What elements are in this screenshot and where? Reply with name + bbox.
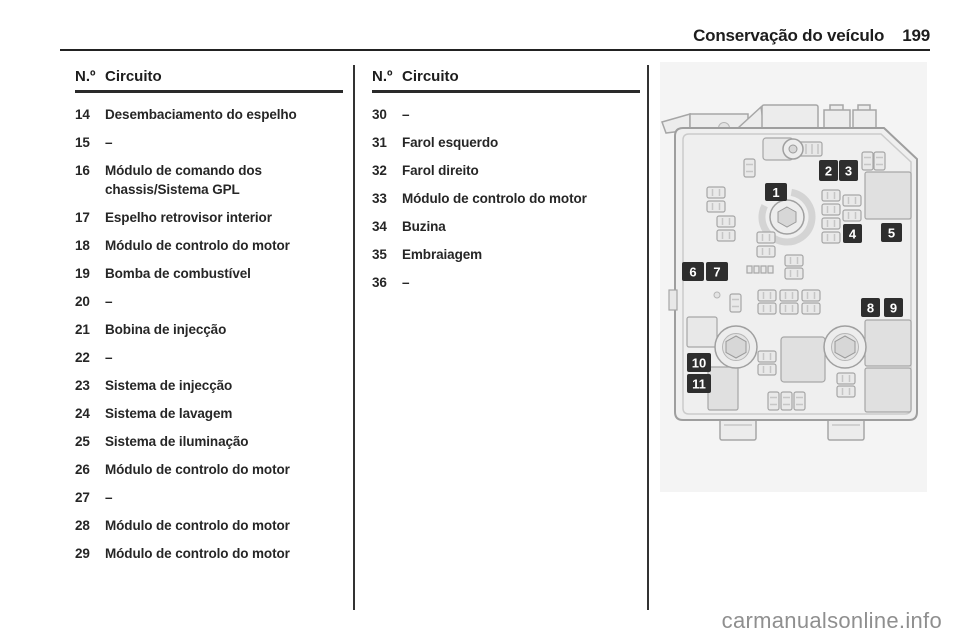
callout-10-label: 10	[692, 356, 706, 371]
callout-4-label: 4	[849, 227, 857, 242]
circuit-row: 20 –	[75, 292, 343, 311]
callout-11: 11	[687, 374, 711, 393]
header-rule	[60, 49, 930, 51]
circuit-row: 14 Desembaciamento do espelho	[75, 105, 343, 124]
table-header: N.º Circuito	[372, 68, 640, 85]
circuit-number: 16	[75, 161, 105, 199]
circuit-label: Módulo de controlo do motor	[105, 516, 317, 535]
col-header-circuit: Circuito	[402, 68, 459, 85]
callout-9: 9	[884, 298, 903, 317]
circuit-label: –	[105, 488, 317, 507]
circuit-label: Sistema de lavagem	[105, 404, 317, 423]
circuit-label: Módulo de controlo do motor	[105, 236, 317, 255]
circuit-number: 28	[75, 516, 105, 535]
column-divider-left	[353, 65, 355, 610]
circuit-label: Farol direito	[402, 161, 638, 180]
circuit-row: 15 –	[75, 133, 343, 152]
circuit-row: 22 –	[75, 348, 343, 367]
circuit-label: Módulo de controlo do motor	[105, 460, 317, 479]
circuit-label: Bomba de combustível	[105, 264, 317, 283]
col-header-circuit: Circuito	[105, 68, 162, 85]
circuit-number: 14	[75, 105, 105, 124]
callout-6-label: 6	[689, 265, 696, 280]
callout-7-label: 7	[713, 265, 720, 280]
circuit-number: 18	[75, 236, 105, 255]
callout-7: 7	[706, 262, 728, 281]
circuit-label: Sistema de injecção	[105, 376, 317, 395]
circuit-row: 23 Sistema de injecção	[75, 376, 343, 395]
callout-2: 2	[819, 160, 838, 181]
page-number: 199	[902, 26, 930, 46]
circuit-table-right: N.º Circuito 30 – 31 Farol esquerdo 32 F…	[372, 68, 640, 301]
page-header: Conservação do veículo 199	[693, 26, 930, 46]
callout-10: 10	[687, 353, 711, 372]
circuit-label: Farol esquerdo	[402, 133, 638, 152]
circuit-number: 25	[75, 432, 105, 451]
table-header: N.º Circuito	[75, 68, 343, 85]
circuit-number: 22	[75, 348, 105, 367]
circuit-number: 33	[372, 189, 402, 208]
circuit-row: 34 Buzina	[372, 217, 640, 236]
circuit-table-left: N.º Circuito 14 Desembaciamento do espel…	[75, 68, 343, 572]
circuit-label: –	[105, 133, 317, 152]
fuse-box-figure: 1 2 3 4 5 6 7 8	[660, 62, 927, 492]
callout-4: 4	[843, 224, 862, 243]
circuit-label: Sistema de iluminação	[105, 432, 317, 451]
circuit-row: 21 Bobina de injecção	[75, 320, 343, 339]
circuit-row: 25 Sistema de iluminação	[75, 432, 343, 451]
page-title: Conservação do veículo	[693, 26, 884, 46]
circuit-row: 32 Farol direito	[372, 161, 640, 180]
circuit-label: Módulo de comando dos chassis/Sistema GP…	[105, 161, 317, 199]
circuit-label: Desembaciamento do espelho	[105, 105, 317, 124]
circuit-row: 29 Módulo de controlo do motor	[75, 544, 343, 563]
col-header-number: N.º	[75, 68, 105, 85]
circuit-row: 30 –	[372, 105, 640, 124]
circuit-number: 31	[372, 133, 402, 152]
table-header-rule	[372, 90, 640, 93]
column-divider-right	[647, 65, 649, 610]
circuit-label: Bobina de injecção	[105, 320, 317, 339]
col-header-number: N.º	[372, 68, 402, 85]
circuit-row: 31 Farol esquerdo	[372, 133, 640, 152]
circuit-label: Módulo de controlo do motor	[105, 544, 317, 563]
callout-9-label: 9	[890, 301, 897, 316]
circuit-label: –	[105, 348, 317, 367]
watermark-text: carmanualsonline.info	[722, 608, 942, 634]
circuit-row: 35 Embraiagem	[372, 245, 640, 264]
callout-3: 3	[839, 160, 858, 181]
circuit-row: 18 Módulo de controlo do motor	[75, 236, 343, 255]
circuit-label: –	[105, 292, 317, 311]
circuit-label: Embraiagem	[402, 245, 638, 264]
circuit-number: 35	[372, 245, 402, 264]
fuse-box-diagram: 1 2 3 4 5 6 7 8	[660, 62, 927, 492]
circuit-number: 21	[75, 320, 105, 339]
callout-8-label: 8	[867, 301, 874, 316]
callout-8: 8	[861, 298, 880, 317]
circuit-label: Buzina	[402, 217, 638, 236]
callout-5: 5	[881, 223, 902, 242]
circuit-number: 30	[372, 105, 402, 124]
callout-5-label: 5	[888, 226, 895, 241]
callout-3-label: 3	[845, 164, 852, 179]
circuit-row: 19 Bomba de combustível	[75, 264, 343, 283]
circuit-number: 19	[75, 264, 105, 283]
circuit-number: 29	[75, 544, 105, 563]
circuit-label: –	[402, 273, 638, 292]
circuit-row: 24 Sistema de lavagem	[75, 404, 343, 423]
circuit-number: 34	[372, 217, 402, 236]
circuit-number: 23	[75, 376, 105, 395]
table-body-right: 30 – 31 Farol esquerdo 32 Farol direito …	[372, 105, 640, 292]
circuit-row: 17 Espelho retrovisor interior	[75, 208, 343, 227]
table-body-left: 14 Desembaciamento do espelho 15 – 16 Mó…	[75, 105, 343, 563]
circuit-number: 20	[75, 292, 105, 311]
circuit-number: 36	[372, 273, 402, 292]
circuit-row: 36 –	[372, 273, 640, 292]
circuit-row: 33 Módulo de controlo do motor	[372, 189, 640, 208]
callout-1-label: 1	[772, 185, 779, 200]
circuit-row: 28 Módulo de controlo do motor	[75, 516, 343, 535]
callout-6: 6	[682, 262, 704, 281]
circuit-number: 24	[75, 404, 105, 423]
circuit-number: 17	[75, 208, 105, 227]
circuit-row: 16 Módulo de comando dos chassis/Sistema…	[75, 161, 343, 199]
circuit-row: 26 Módulo de controlo do motor	[75, 460, 343, 479]
callout-1: 1	[765, 183, 787, 201]
circuit-number: 26	[75, 460, 105, 479]
circuit-number: 27	[75, 488, 105, 507]
circuit-number: 15	[75, 133, 105, 152]
circuit-label: Espelho retrovisor interior	[105, 208, 317, 227]
table-header-rule	[75, 90, 343, 93]
circuit-row: 27 –	[75, 488, 343, 507]
circuit-label: Módulo de controlo do motor	[402, 189, 638, 208]
circuit-number: 32	[372, 161, 402, 180]
callout-2-label: 2	[825, 164, 832, 179]
circuit-label: –	[402, 105, 638, 124]
callout-11-label: 11	[692, 377, 706, 392]
